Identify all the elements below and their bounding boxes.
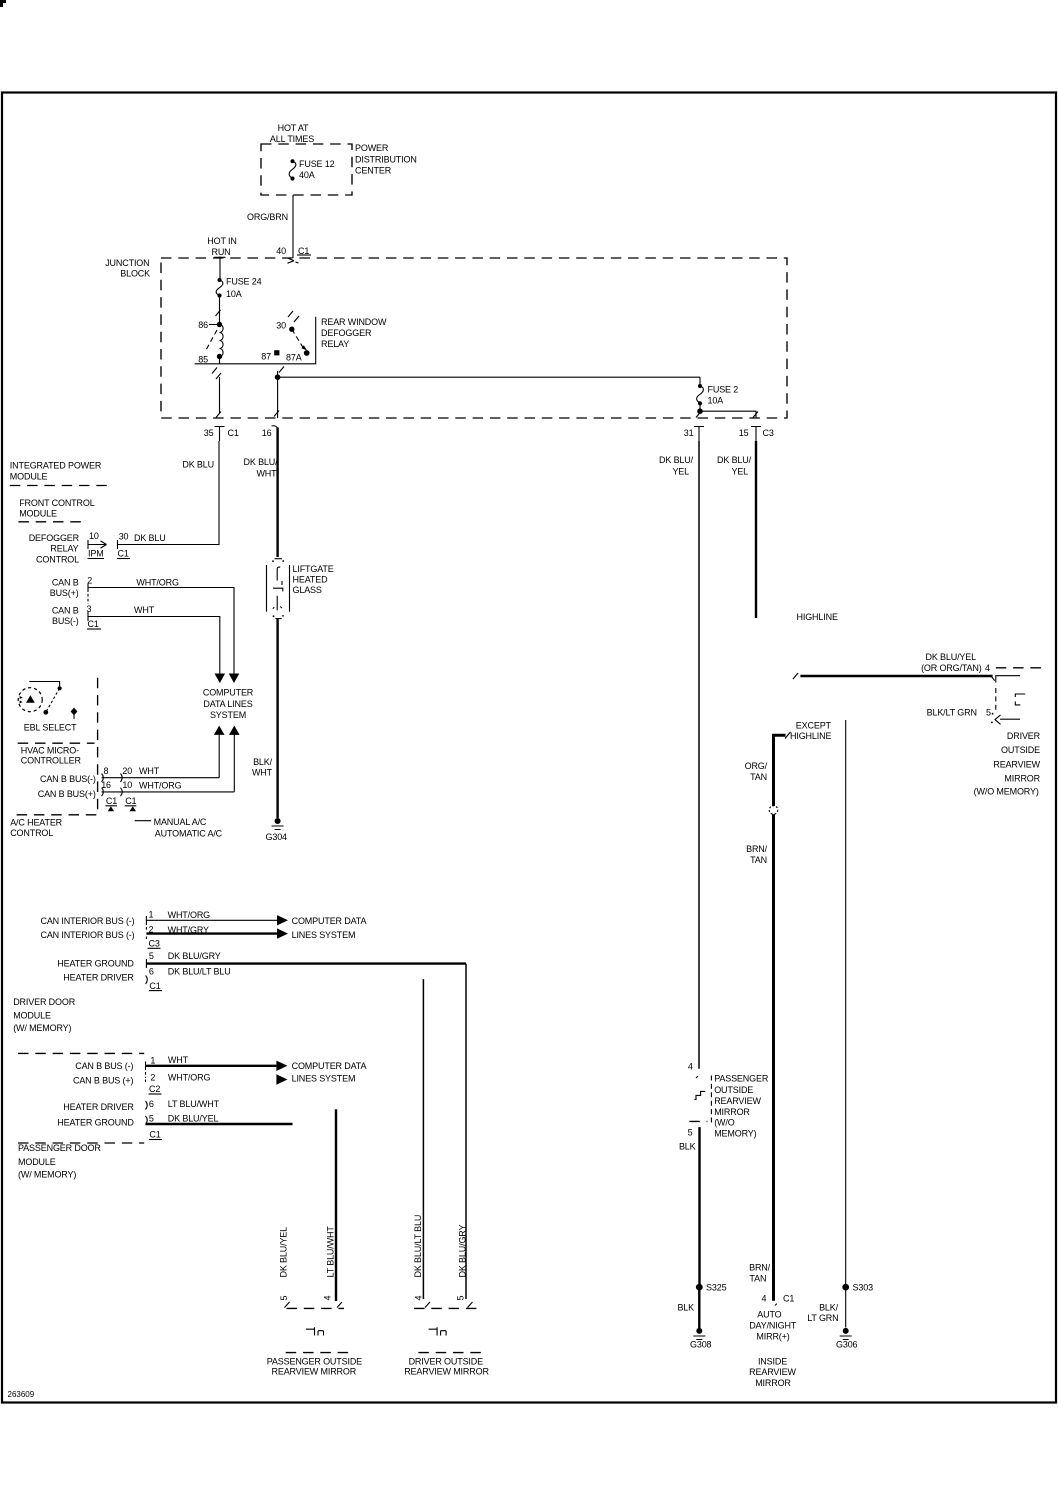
svg-text:MIRROR: MIRROR (1004, 773, 1040, 783)
svg-text:FUSE 2: FUSE 2 (708, 385, 739, 395)
svg-text:LT BLU/WHT: LT BLU/WHT (326, 1226, 336, 1278)
svg-text:HEATER DRIVER: HEATER DRIVER (63, 1102, 134, 1112)
svg-text:C1: C1 (118, 549, 129, 559)
svg-text:DK BLU: DK BLU (182, 460, 214, 470)
svg-text:LT BLU/WHT: LT BLU/WHT (168, 1099, 220, 1109)
svg-text:BLK/: BLK/ (253, 757, 273, 767)
svg-text:CAN INTERIOR BUS (-): CAN INTERIOR BUS (-) (40, 930, 134, 940)
svg-text:DK BLU/: DK BLU/ (717, 455, 752, 465)
svg-text:4: 4 (688, 1062, 693, 1072)
svg-text:CENTER: CENTER (355, 166, 392, 176)
svg-text:DK BLU/GRY: DK BLU/GRY (168, 951, 221, 961)
svg-text:TAN: TAN (750, 855, 767, 865)
svg-text:CAN INTERIOR BUS (-): CAN INTERIOR BUS (-) (40, 916, 134, 926)
svg-text:C3: C3 (763, 428, 774, 438)
svg-text:LINES SYSTEM: LINES SYSTEM (292, 930, 356, 940)
svg-text:HEATER DRIVER: HEATER DRIVER (63, 973, 134, 983)
svg-text:WHT/ORG: WHT/ORG (136, 578, 179, 588)
svg-text:HEATED: HEATED (293, 575, 329, 585)
svg-text:DAY/NIGHT: DAY/NIGHT (749, 1321, 797, 1331)
svg-text:BLK: BLK (679, 1141, 696, 1151)
svg-text:LT GRN: LT GRN (807, 1313, 838, 1323)
svg-text:FUSE 24: FUSE 24 (226, 277, 262, 287)
svg-text:3: 3 (87, 604, 92, 614)
svg-text:10A: 10A (226, 289, 242, 299)
svg-text:86: 86 (198, 320, 208, 330)
svg-text:REARVIEW: REARVIEW (993, 759, 1040, 769)
svg-text:2: 2 (150, 1072, 155, 1082)
svg-text:LIFTGATE: LIFTGATE (293, 564, 334, 574)
svg-text:POWER: POWER (355, 143, 389, 153)
svg-text:(OR ORG/TAN): (OR ORG/TAN) (921, 663, 982, 673)
svg-text:WHT: WHT (252, 768, 273, 778)
svg-text:S303: S303 (853, 1283, 874, 1293)
svg-text:DRIVER DOOR: DRIVER DOOR (13, 997, 76, 1007)
svg-text:FUSE 12: FUSE 12 (299, 159, 335, 169)
svg-text:ORG/BRN: ORG/BRN (247, 212, 288, 222)
svg-text:6: 6 (149, 1099, 154, 1109)
svg-text:REAR WINDOW: REAR WINDOW (321, 317, 387, 327)
svg-text:MANUAL A/C: MANUAL A/C (154, 817, 207, 827)
svg-text:COMPUTER DATA: COMPUTER DATA (292, 1061, 367, 1071)
svg-text:6: 6 (149, 966, 154, 976)
svg-text:5: 5 (456, 1296, 466, 1301)
svg-text:4: 4 (761, 1294, 766, 1304)
svg-text:MIRR(+): MIRR(+) (756, 1331, 789, 1341)
svg-text:DRIVER OUTSIDE: DRIVER OUTSIDE (409, 1357, 484, 1367)
svg-text:DEFOGGER: DEFOGGER (29, 533, 80, 543)
svg-text:87A: 87A (286, 352, 302, 362)
svg-text:TAN: TAN (749, 1273, 766, 1283)
svg-text:CONTROL: CONTROL (10, 828, 53, 838)
svg-text:1: 1 (149, 910, 154, 920)
svg-text:C1: C1 (88, 619, 99, 629)
svg-text:RELAY: RELAY (321, 339, 349, 349)
svg-text:REARVIEW: REARVIEW (749, 1367, 796, 1377)
svg-text:CAN B BUS(+): CAN B BUS(+) (38, 789, 96, 799)
svg-text:EBL SELECT: EBL SELECT (24, 723, 77, 733)
svg-text:AUTO: AUTO (757, 1310, 781, 1320)
svg-text:WHT: WHT (134, 605, 155, 615)
svg-text:DATA LINES: DATA LINES (203, 699, 252, 709)
svg-text:31: 31 (684, 428, 694, 438)
svg-text:(W/ MEMORY): (W/ MEMORY) (13, 1023, 71, 1033)
svg-text:HEATER GROUND: HEATER GROUND (57, 1118, 134, 1128)
svg-text:DK BLU: DK BLU (134, 533, 166, 543)
svg-text:PASSENGER: PASSENGER (714, 1073, 769, 1083)
svg-text:JUNCTION: JUNCTION (105, 258, 149, 268)
svg-text:G304: G304 (266, 832, 288, 842)
svg-text:HOT IN: HOT IN (207, 236, 236, 246)
svg-text:C1: C1 (783, 1294, 794, 1304)
svg-text:FRONT CONTROL: FRONT CONTROL (19, 498, 95, 508)
svg-text:LINES SYSTEM: LINES SYSTEM (292, 1074, 356, 1084)
svg-text:ORG/: ORG/ (745, 761, 768, 771)
svg-text:COMPUTER: COMPUTER (203, 688, 254, 698)
svg-text:REARVIEW MIRROR: REARVIEW MIRROR (272, 1366, 357, 1376)
svg-text:INSIDE: INSIDE (758, 1356, 787, 1366)
svg-text:5: 5 (149, 1113, 154, 1123)
svg-text:MODULE: MODULE (19, 509, 57, 519)
svg-text:87: 87 (261, 351, 271, 361)
svg-text:8: 8 (104, 766, 109, 776)
svg-text:40: 40 (276, 246, 286, 256)
svg-text:REARVIEW: REARVIEW (714, 1096, 761, 1106)
svg-text:MIRROR: MIRROR (714, 1107, 750, 1117)
svg-text:CAN B: CAN B (52, 606, 79, 616)
svg-text:REARVIEW MIRROR: REARVIEW MIRROR (404, 1366, 489, 1376)
svg-text:SYSTEM: SYSTEM (210, 710, 246, 720)
svg-text:30: 30 (119, 532, 129, 542)
svg-text:RELAY: RELAY (50, 544, 78, 554)
svg-text:C1: C1 (149, 981, 160, 991)
svg-text:40A: 40A (299, 170, 315, 180)
svg-text:4: 4 (414, 1296, 424, 1301)
svg-text:C1: C1 (149, 1130, 160, 1140)
svg-text:BRN/: BRN/ (749, 1263, 771, 1273)
svg-text:CONTROLLER: CONTROLLER (21, 756, 82, 766)
svg-text:S325: S325 (706, 1283, 727, 1293)
svg-text:C1: C1 (106, 796, 117, 806)
svg-text:G308: G308 (690, 1339, 712, 1349)
svg-text:YEL: YEL (672, 467, 689, 477)
svg-text:COMPUTER DATA: COMPUTER DATA (292, 916, 367, 926)
svg-text:A/C HEATER: A/C HEATER (10, 817, 62, 827)
svg-text:OUTSIDE: OUTSIDE (1001, 745, 1040, 755)
svg-text:C1: C1 (228, 428, 239, 438)
svg-text:CONTROL: CONTROL (36, 555, 79, 565)
svg-text:PASSENGER DOOR: PASSENGER DOOR (18, 1143, 101, 1153)
svg-text:RUN: RUN (211, 247, 230, 257)
svg-text:16: 16 (262, 428, 272, 438)
svg-text:DRIVER: DRIVER (1007, 731, 1041, 741)
svg-text:HOT AT: HOT AT (278, 123, 309, 133)
svg-text:DISTRIBUTION: DISTRIBUTION (355, 154, 417, 164)
svg-text:1: 1 (150, 1055, 155, 1065)
svg-text:PASSENGER OUTSIDE: PASSENGER OUTSIDE (267, 1357, 362, 1367)
svg-text:DK BLU/YEL: DK BLU/YEL (168, 1114, 219, 1124)
svg-text:DK BLU/YEL: DK BLU/YEL (279, 1227, 289, 1278)
svg-text:BUS(+): BUS(+) (50, 588, 79, 598)
svg-text:4: 4 (323, 1296, 333, 1301)
svg-text:TAN: TAN (750, 772, 767, 782)
svg-text:HVAC MICRO-: HVAC MICRO- (21, 745, 79, 755)
svg-text:WHT: WHT (256, 469, 277, 479)
svg-text:HIGHLINE: HIGHLINE (790, 731, 831, 741)
svg-text:MEMORY): MEMORY) (714, 1128, 756, 1138)
svg-text:AUTOMATIC A/C: AUTOMATIC A/C (155, 829, 223, 839)
svg-text:WHT: WHT (139, 766, 160, 776)
svg-text:GLASS: GLASS (293, 585, 322, 595)
svg-text:OUTSIDE: OUTSIDE (714, 1085, 753, 1095)
svg-text:C2: C2 (149, 1084, 160, 1094)
svg-text:CAN B BUS (-): CAN B BUS (-) (75, 1061, 133, 1071)
svg-text:DK BLU/LT BLU: DK BLU/LT BLU (168, 967, 231, 977)
svg-text:BUS(-): BUS(-) (52, 616, 79, 626)
svg-text:10: 10 (89, 531, 99, 541)
svg-text:DK BLU/YEL: DK BLU/YEL (925, 652, 976, 662)
svg-text:85: 85 (198, 354, 208, 364)
svg-text:DK BLU/GRY: DK BLU/GRY (458, 1225, 468, 1278)
svg-text:5: 5 (688, 1127, 693, 1137)
svg-text:BLK/: BLK/ (819, 1302, 839, 1312)
svg-text:15: 15 (739, 428, 749, 438)
svg-text:MIRROR: MIRROR (755, 1378, 791, 1388)
svg-text:30: 30 (276, 320, 286, 330)
svg-text:5: 5 (149, 951, 154, 961)
svg-text:BLK/LT GRN: BLK/LT GRN (927, 707, 977, 717)
svg-text:DK BLU/: DK BLU/ (659, 455, 694, 465)
svg-text:4: 4 (985, 663, 990, 673)
svg-text:CAN B: CAN B (52, 578, 79, 588)
svg-text:MODULE: MODULE (13, 1010, 51, 1020)
svg-text:263609: 263609 (8, 1390, 35, 1399)
svg-text:10A: 10A (708, 396, 724, 406)
svg-text:CAN B BUS (+): CAN B BUS (+) (73, 1076, 133, 1086)
svg-text:(W/O: (W/O (714, 1118, 735, 1128)
svg-text:ALL TIMES: ALL TIMES (270, 134, 314, 144)
svg-text:C1: C1 (125, 796, 136, 806)
svg-text:CAN B BUS(-): CAN B BUS(-) (40, 774, 96, 784)
svg-text:HEATER GROUND: HEATER GROUND (57, 959, 134, 969)
svg-text:35: 35 (204, 428, 214, 438)
svg-text:DK BLU/LT BLU: DK BLU/LT BLU (413, 1215, 423, 1278)
svg-text:EXCEPT: EXCEPT (796, 721, 832, 731)
svg-text:10: 10 (122, 780, 132, 790)
svg-text:BLK: BLK (677, 1302, 694, 1312)
svg-text:IPM: IPM (88, 549, 104, 559)
svg-text:INTEGRATED POWER: INTEGRATED POWER (10, 461, 102, 471)
svg-text:YEL: YEL (731, 467, 748, 477)
svg-text:5: 5 (986, 707, 991, 717)
svg-text:20: 20 (122, 766, 132, 776)
svg-text:(W/ MEMORY): (W/ MEMORY) (18, 1170, 76, 1180)
svg-text:5: 5 (279, 1296, 289, 1301)
svg-text:DK BLU/: DK BLU/ (244, 457, 279, 467)
svg-text:WHT/ORG: WHT/ORG (168, 910, 211, 920)
svg-text:C3: C3 (149, 938, 160, 948)
svg-text:MODULE: MODULE (10, 471, 48, 481)
svg-text:WHT: WHT (168, 1055, 189, 1065)
svg-text:DEFOGGER: DEFOGGER (321, 328, 372, 338)
svg-text:(W/O MEMORY): (W/O MEMORY) (974, 787, 1039, 797)
svg-text:BLOCK: BLOCK (120, 269, 150, 279)
svg-text:WHT/ORG: WHT/ORG (139, 781, 182, 791)
svg-text:MODULE: MODULE (18, 1157, 56, 1167)
svg-text:G306: G306 (836, 1339, 858, 1349)
svg-text:WHT/ORG: WHT/ORG (168, 1073, 211, 1083)
svg-text:BRN/: BRN/ (746, 844, 768, 854)
svg-text:HIGHLINE: HIGHLINE (797, 612, 838, 622)
